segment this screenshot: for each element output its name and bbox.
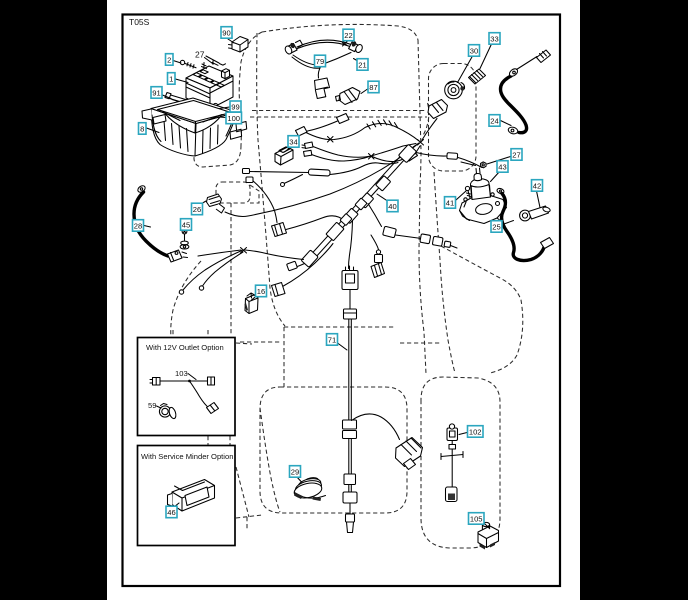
svg-text:With Service Minder Option: With Service Minder Option — [141, 452, 233, 461]
svg-text:41: 41 — [446, 199, 454, 208]
svg-text:29: 29 — [291, 468, 299, 477]
svg-text:42: 42 — [533, 182, 541, 191]
svg-text:28: 28 — [134, 222, 142, 231]
svg-text:22: 22 — [344, 31, 352, 40]
svg-text:91: 91 — [152, 89, 160, 98]
svg-text:T05S: T05S — [129, 17, 150, 27]
svg-text:43: 43 — [498, 163, 506, 172]
svg-text:27: 27 — [512, 151, 520, 160]
svg-text:99: 99 — [231, 103, 239, 112]
svg-text:25: 25 — [492, 223, 500, 232]
svg-text:90: 90 — [222, 29, 230, 38]
svg-text:71: 71 — [328, 336, 336, 345]
svg-text:2: 2 — [167, 56, 171, 65]
svg-text:105: 105 — [470, 515, 483, 524]
svg-text:1: 1 — [169, 75, 173, 84]
svg-text:59: 59 — [148, 401, 156, 410]
svg-text:21: 21 — [358, 61, 366, 70]
svg-text:30: 30 — [470, 47, 478, 56]
svg-text:34: 34 — [289, 138, 297, 147]
svg-text:With 12V Outlet Option: With 12V Outlet Option — [146, 343, 224, 352]
svg-text:27: 27 — [195, 50, 205, 60]
svg-text:24: 24 — [490, 117, 498, 126]
svg-text:103: 103 — [175, 369, 188, 378]
svg-text:26: 26 — [193, 205, 201, 214]
svg-text:102: 102 — [469, 428, 482, 437]
svg-text:40: 40 — [388, 202, 396, 211]
svg-text:16: 16 — [257, 287, 265, 296]
svg-text:87: 87 — [369, 83, 377, 92]
svg-text:45: 45 — [182, 221, 190, 230]
svg-text:46: 46 — [167, 508, 175, 517]
svg-text:8: 8 — [140, 125, 144, 134]
svg-text:100: 100 — [227, 114, 240, 123]
svg-text:33: 33 — [490, 35, 498, 44]
svg-text:79: 79 — [316, 57, 324, 66]
